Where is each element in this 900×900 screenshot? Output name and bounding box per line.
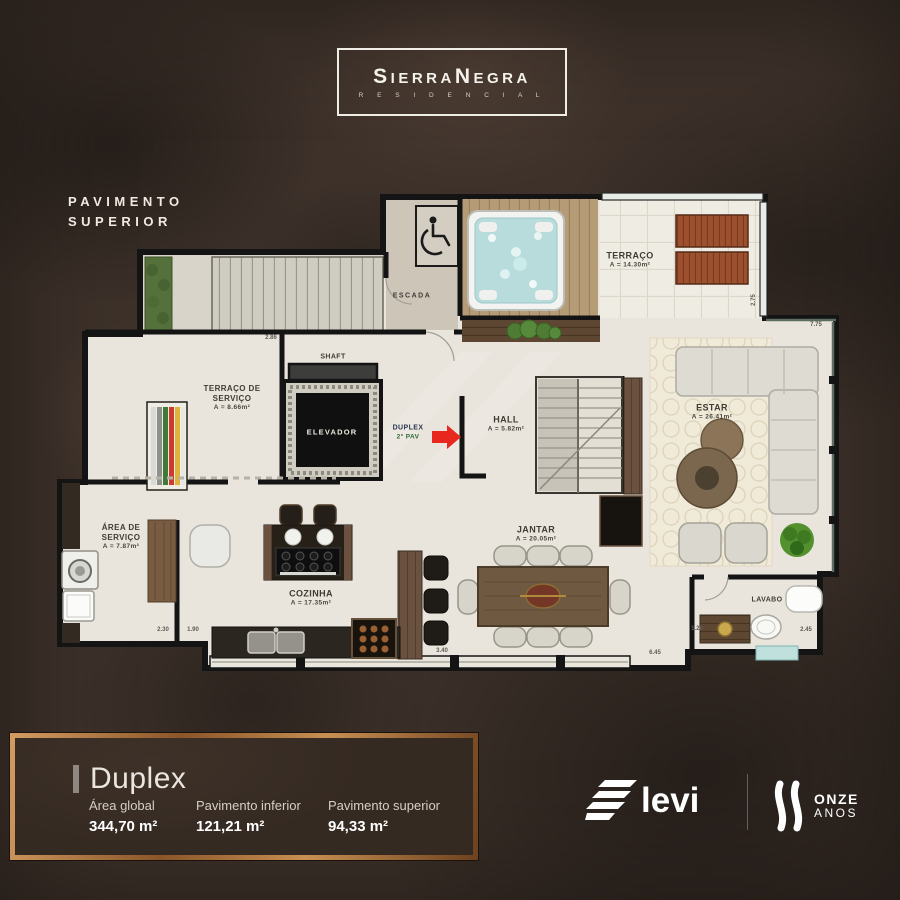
unit-title: Duplex: [90, 762, 186, 796]
onze-anos-logo: ONZE ANOS: [772, 780, 859, 832]
dimension-label: 1.90: [187, 627, 199, 633]
logo-divider: [747, 774, 748, 830]
elevi-logo-text: levi: [641, 783, 699, 818]
unit-title-row: Duplex: [73, 762, 186, 796]
stat-pavimento-superior: Pavimento superior 94,33 m²: [328, 798, 468, 835]
onze-anos-text: ONZE ANOS: [814, 792, 859, 821]
pantry-cabinet-icon: [148, 520, 176, 602]
unit-info-panel: Duplex Área global 344,70 m² Pavimento i…: [10, 733, 478, 860]
elevi-logo-mark: [585, 778, 639, 822]
room-label-terraco: TERRAÇO A = 14.30m²: [606, 250, 653, 269]
wheelchair-icon: [416, 206, 458, 266]
dimension-label: 2.45: [800, 627, 812, 633]
kitchen-sink-icon: [248, 632, 275, 653]
stat-area-global: Área global 344,70 m²: [89, 798, 196, 835]
dimension-label: 6.45: [649, 650, 661, 656]
unit-info-panel-inner: Duplex Área global 344,70 m² Pavimento i…: [15, 738, 473, 855]
internal-stairs-icon: [536, 377, 622, 493]
room-label-cozinha: COZINHA A = 17.35m²: [289, 588, 333, 607]
elevator: [284, 364, 381, 479]
dimension-label: 2.75: [751, 294, 757, 306]
room-label-hall: HALL A = 5.82m²: [488, 414, 524, 433]
stat-pavimento-inferior: Pavimento inferior 121,21 m²: [196, 798, 328, 835]
room-label-elevador: ELEVADOR: [307, 427, 358, 436]
dimension-label: 3.40: [436, 648, 448, 654]
room-label-shaft: SHAFT: [320, 354, 345, 363]
room-label-jantar: JANTAR A = 20.05m²: [516, 524, 556, 543]
onze-anos-logo-mark: [772, 780, 806, 832]
room-label-duplex: DUPLEX 2° PAV: [393, 425, 424, 442]
room-label-escada: ESCADA: [393, 293, 432, 302]
toilet-icon: [751, 615, 781, 639]
glass-door-icon: [756, 646, 798, 660]
unit-stats: Área global 344,70 m² Pavimento inferior…: [89, 798, 468, 835]
elevi-logo: levi: [585, 778, 699, 822]
title-accent-bar: [73, 765, 79, 793]
page: SierraNegra R E S I D E N C I A L PAVIME…: [0, 0, 900, 900]
plant-icon: [780, 523, 814, 557]
room-label-area-servico: ÁREA DE SERVIÇO A = 7.87m²: [102, 523, 141, 551]
dimension-label: 2.30: [157, 627, 169, 633]
sink-icon: [786, 586, 822, 612]
shaft-box: [289, 364, 377, 380]
hot-tub-icon: [468, 211, 564, 310]
water-tank-icon: [190, 525, 230, 567]
room-label-estar: ESTAR A = 26.41m²: [692, 402, 732, 421]
room-label-lavabo: LAVABO: [752, 597, 783, 606]
dimension-label: 2.86: [265, 335, 277, 341]
planter-shelf-icon: [462, 320, 600, 342]
brand-logos: levi ONZE ANOS: [580, 770, 870, 840]
room-label-terraco-servico: TERRAÇO DE SERVIÇO A = 8.66m²: [204, 384, 261, 412]
dimension-label: 7.75: [810, 322, 822, 328]
dimension-label: 1.26: [691, 626, 703, 632]
